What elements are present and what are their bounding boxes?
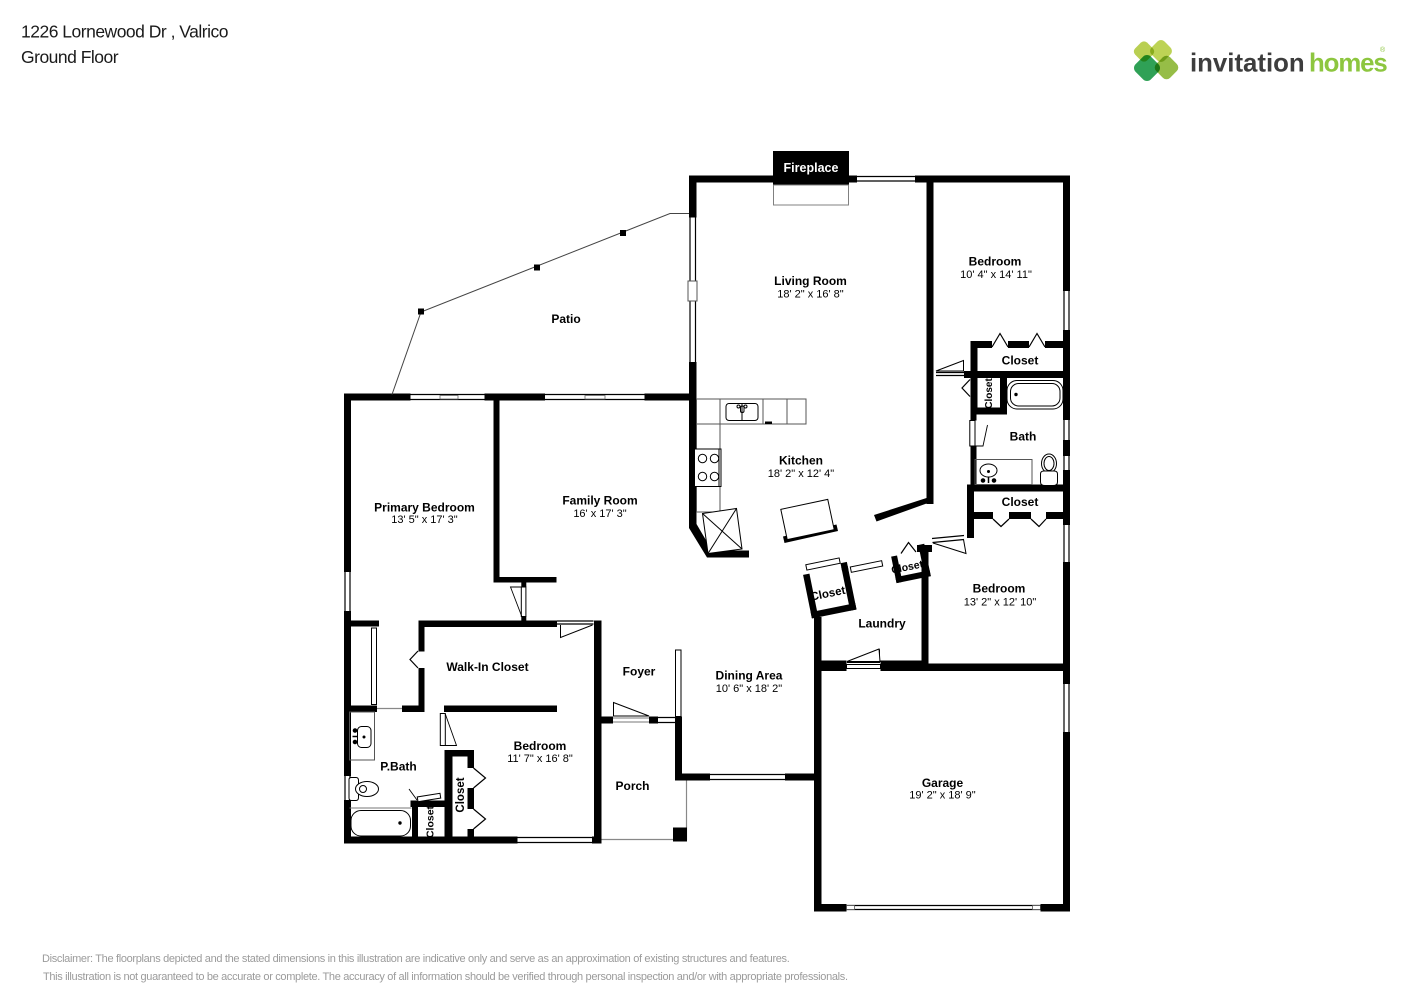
svg-text:Closet: Closet: [1002, 354, 1039, 368]
svg-text:13' 2" x 12' 10": 13' 2" x 12' 10": [964, 597, 1037, 609]
svg-text:Closet: Closet: [425, 805, 437, 838]
svg-text:10' 6" x 18' 2": 10' 6" x 18' 2": [716, 683, 783, 695]
svg-text:®: ®: [1380, 46, 1386, 54]
svg-text:invitation: invitation: [1190, 50, 1305, 78]
svg-text:Kitchen: Kitchen: [779, 454, 823, 468]
svg-text:Closet: Closet: [455, 777, 467, 812]
svg-text:13' 5" x 17' 3": 13' 5" x 17' 3": [391, 514, 458, 526]
svg-text:Family Room: Family Room: [562, 494, 637, 508]
svg-text:18' 2" x 12' 4": 18' 2" x 12' 4": [768, 468, 835, 480]
svg-text:Fireplace: Fireplace: [784, 161, 839, 175]
svg-text:This illustration is not guara: This illustration is not guaranteed to b…: [43, 971, 848, 983]
svg-text:P.Bath: P.Bath: [380, 760, 416, 774]
svg-text:11' 7" x 16' 8": 11' 7" x 16' 8": [507, 753, 573, 765]
svg-text:10' 4" x 14' 11": 10' 4" x 14' 11": [960, 269, 1032, 281]
svg-text:Disclaimer: The floorplans dep: Disclaimer: The floorplans depicted and …: [42, 953, 790, 965]
svg-text:Bath: Bath: [1010, 430, 1037, 444]
svg-text:Bedroom: Bedroom: [969, 255, 1022, 269]
svg-text:Ground Floor: Ground Floor: [21, 47, 119, 67]
svg-text:Bedroom: Bedroom: [973, 582, 1026, 596]
svg-text:18' 2" x 16' 8": 18' 2" x 16' 8": [777, 289, 844, 301]
svg-text:19' 2" x 18' 9": 19' 2" x 18' 9": [909, 790, 976, 802]
svg-text:Closet: Closet: [1002, 495, 1039, 509]
svg-text:1226 Lornewood Dr , Valrico: 1226 Lornewood Dr , Valrico: [21, 22, 228, 42]
svg-text:16' x 17' 3": 16' x 17' 3": [573, 508, 626, 520]
svg-text:Patio: Patio: [551, 312, 580, 326]
svg-text:Dining Area: Dining Area: [716, 669, 783, 683]
svg-text:Closet: Closet: [984, 378, 995, 409]
svg-text:homes: homes: [1309, 50, 1387, 78]
svg-text:Primary Bedroom: Primary Bedroom: [374, 501, 475, 515]
svg-text:Living Room: Living Room: [774, 274, 847, 288]
svg-text:Foyer: Foyer: [623, 665, 656, 679]
svg-text:Laundry: Laundry: [858, 617, 906, 631]
svg-text:Porch: Porch: [615, 779, 649, 793]
svg-text:Walk-In Closet: Walk-In Closet: [446, 660, 528, 674]
svg-text:Bedroom: Bedroom: [514, 739, 567, 753]
svg-text:Garage: Garage: [922, 776, 964, 790]
